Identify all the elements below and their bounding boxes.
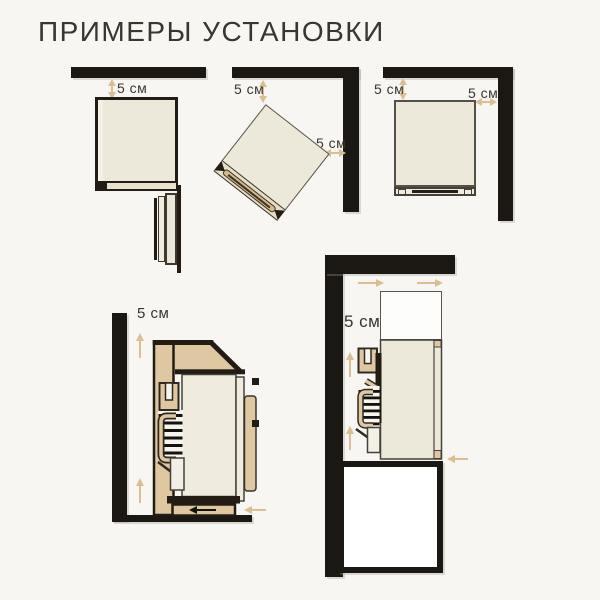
wall-right bbox=[498, 67, 513, 221]
exchanger-slot bbox=[365, 349, 372, 364]
installation-examples-diagram: ПРИМЕРЫ УСТАНОВКИ 5 см 5 см 5 см bbox=[0, 0, 600, 600]
hood-top bbox=[153, 340, 214, 345]
stove-cross-section bbox=[150, 336, 268, 522]
base-plate bbox=[167, 496, 240, 504]
stove-inner-liner bbox=[98, 100, 103, 181]
open-door-glass bbox=[154, 198, 157, 260]
stove-front-door bbox=[213, 160, 285, 221]
stove-body bbox=[381, 340, 442, 459]
door-knob bbox=[252, 420, 259, 427]
front-corner-block bbox=[434, 341, 441, 348]
gap-label: 5 см bbox=[117, 80, 147, 96]
door-hinge bbox=[97, 182, 107, 190]
wall-top bbox=[232, 67, 359, 78]
page-title: ПРИМЕРЫ УСТАНОВКИ bbox=[38, 16, 385, 48]
ash-box bbox=[171, 458, 185, 490]
gap-label: 5 см bbox=[234, 81, 264, 97]
stove-top-view bbox=[95, 97, 178, 181]
door-handle bbox=[245, 396, 257, 491]
airflow-up-arrow-icon bbox=[139, 486, 141, 503]
open-door-panel bbox=[165, 193, 177, 265]
airflow-up-arrow-icon bbox=[139, 341, 141, 358]
front-corner-block bbox=[434, 451, 441, 459]
base-niche bbox=[338, 461, 443, 573]
wall-top bbox=[383, 67, 513, 78]
stove-front-edge bbox=[95, 181, 178, 191]
stove-cross-section bbox=[346, 338, 460, 464]
dimension-arrow-icon bbox=[482, 101, 490, 103]
door-handle-line bbox=[228, 174, 271, 208]
stove-top-view bbox=[394, 100, 476, 187]
wall-top bbox=[325, 255, 455, 274]
gap-label: 5 см bbox=[344, 312, 380, 332]
wall-left bbox=[112, 313, 127, 521]
dimension-arrow-icon bbox=[331, 152, 339, 154]
open-door-frame bbox=[177, 185, 181, 273]
wall-top bbox=[71, 67, 206, 78]
gap-label: 5 см bbox=[468, 85, 498, 101]
door-section bbox=[236, 377, 244, 501]
gap-label: 5 см bbox=[137, 305, 169, 322]
stove-top-view-rotated bbox=[213, 104, 329, 221]
door-handle bbox=[412, 190, 458, 194]
firebox bbox=[182, 375, 236, 497]
exchanger-slot bbox=[166, 383, 173, 400]
door-knob bbox=[252, 378, 259, 385]
door-bracket bbox=[464, 189, 472, 195]
gap-label: 5 см bbox=[374, 81, 404, 97]
hood-bottom-bar bbox=[175, 369, 245, 374]
dimension-arrow-icon bbox=[111, 86, 113, 92]
airflow-right-arrow-icon bbox=[417, 282, 435, 284]
door-bracket bbox=[398, 189, 406, 195]
open-door-glass-frame bbox=[158, 196, 165, 262]
ash-box bbox=[368, 428, 381, 453]
convection-duct bbox=[380, 291, 442, 340]
airflow-right-arrow-icon bbox=[358, 282, 376, 284]
